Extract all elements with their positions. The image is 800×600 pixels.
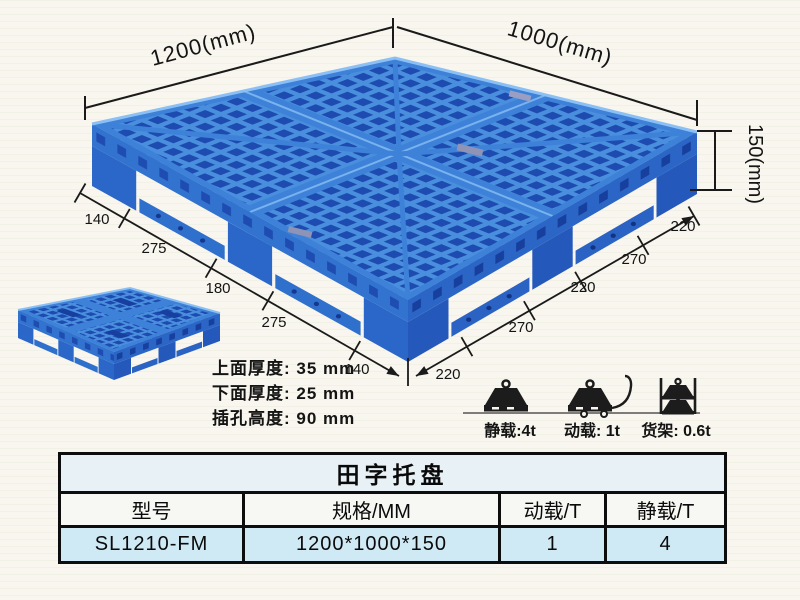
dynamic-load-icon <box>568 376 631 417</box>
load-capacity-icons: 静载:4t 动载: 1t 货架: 0.6t <box>463 376 711 440</box>
dim-seg: 270 <box>621 251 646 268</box>
product-spec-sheet: 1200(mm) 1000(mm) 150(mm) 140 275 180 27… <box>0 0 800 600</box>
dim-seg: 275 <box>261 314 286 331</box>
cell-model: SL1210-FM <box>61 528 245 561</box>
header-model: 型号 <box>61 494 245 528</box>
cell-static-load: 4 <box>607 528 724 561</box>
dim-seg: 220 <box>435 366 460 383</box>
dim-1200: 1200(mm) <box>148 19 259 71</box>
thickness-notes: 上面厚度: 35 mm 下面厚度: 25 mm 插孔高度: 90 mm <box>212 358 355 428</box>
note-fork-height: 插孔高度: 90 mm <box>212 408 355 428</box>
rack-load-icon <box>661 378 695 415</box>
spec-table-title: 田字托盘 <box>61 455 724 494</box>
dim-seg: 180 <box>205 280 230 297</box>
rack-load-label: 货架: 0.6t <box>641 421 711 440</box>
dim-seg: 275 <box>141 240 166 257</box>
dim-150: 150(mm) <box>744 124 766 204</box>
dim-seg: 270 <box>508 319 533 336</box>
dim-seg: 140 <box>84 211 109 228</box>
note-top-thickness: 上面厚度: 35 mm <box>212 358 355 378</box>
static-load-icon <box>484 381 528 412</box>
header-static-load: 静载/T <box>607 494 724 528</box>
cell-dynamic-load: 1 <box>501 528 607 561</box>
header-spec: 规格/MM <box>245 494 501 528</box>
dim-seg: 220 <box>570 279 595 296</box>
spec-table: 田字托盘 型号 规格/MM 动载/T 静载/T SL1210-FM 1200*1… <box>58 452 727 564</box>
small-pallet-illustration <box>18 288 220 380</box>
header-dynamic-load: 动载/T <box>501 494 607 528</box>
dim-seg: 220 <box>670 218 695 235</box>
dim-1000: 1000(mm) <box>505 15 616 70</box>
cell-spec: 1200*1000*150 <box>245 528 501 561</box>
note-bottom-thickness: 下面厚度: 25 mm <box>212 383 355 403</box>
static-load-label: 静载:4t <box>484 421 536 440</box>
dynamic-load-label: 动载: 1t <box>564 422 621 440</box>
dimension-height: 150(mm) <box>690 124 766 204</box>
